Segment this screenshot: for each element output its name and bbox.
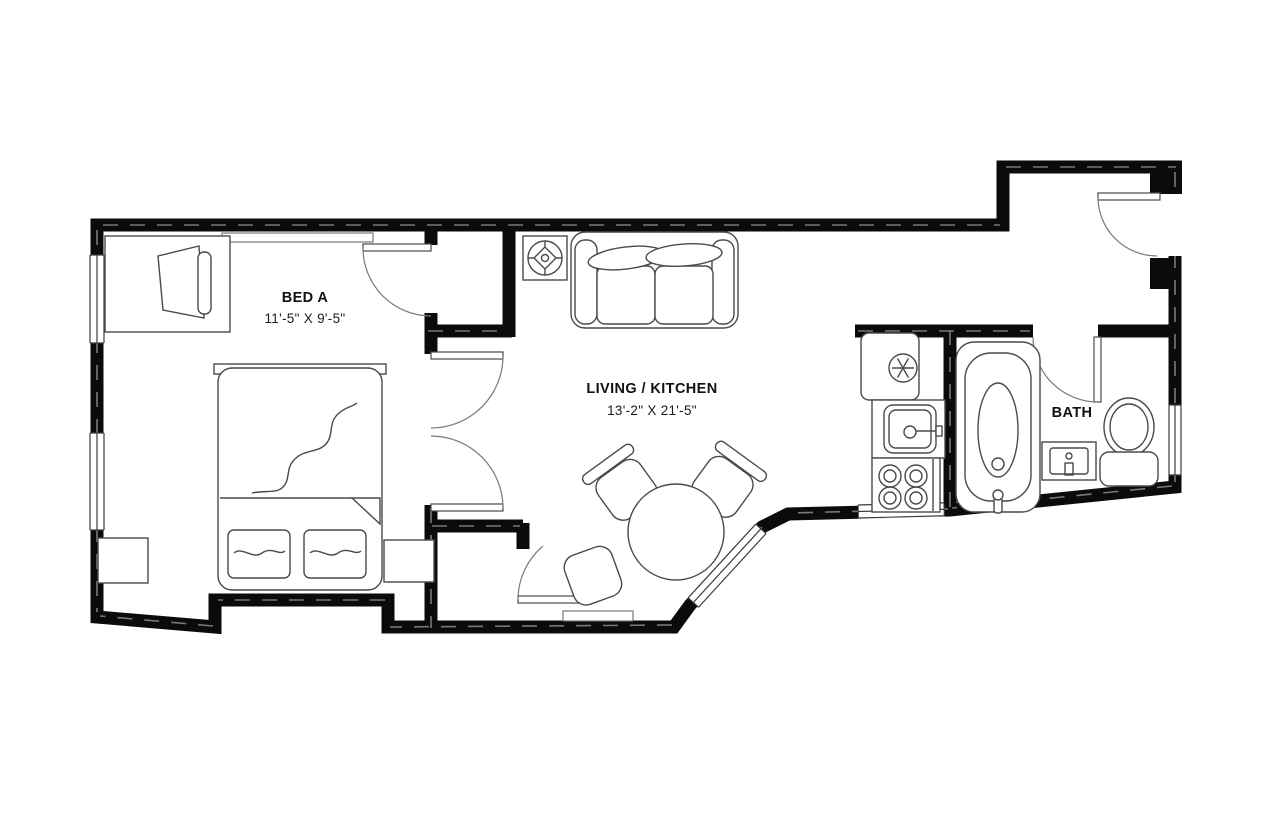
bedroom-closet-door (363, 244, 431, 316)
dining-table (628, 484, 724, 580)
vanity-sink-icon (1042, 442, 1096, 480)
stove-icon (872, 458, 940, 512)
kitchen-sink-icon (872, 400, 945, 458)
interior-walls (425, 219, 1181, 633)
bedroom-double-door-upper (431, 352, 503, 428)
pillow (228, 530, 290, 578)
toilet-icon (1100, 398, 1158, 486)
double-bed (214, 364, 386, 590)
living-kitchen-label: LIVING / KITCHEN (586, 381, 717, 397)
kitchen-appliances (861, 333, 945, 512)
nightstand-right (384, 540, 434, 582)
wall-jog-block (1150, 258, 1181, 289)
bedroom-dimensions: 11'-5" X 9'-5" (265, 311, 346, 326)
ceiling-light-icon (523, 236, 567, 280)
window-bedroom-left-upper (88, 255, 106, 343)
entry-door-opening (1166, 194, 1186, 256)
closet-shelf (222, 233, 373, 242)
refrigerator-icon (861, 333, 919, 400)
floor-plan-page: BED A 11'-5" X 9'-5" LIVING / KITCHEN 13… (0, 0, 1280, 828)
bathtub-icon (956, 342, 1040, 513)
desk-chair (158, 246, 211, 318)
sofa-seat (655, 266, 713, 324)
living-kitchen-dimensions: 13'-2" X 21'-5" (607, 403, 697, 418)
pillow (304, 530, 366, 578)
entry-door (1098, 193, 1160, 256)
wall-corner-block (1150, 161, 1182, 194)
bath-label: BATH (1052, 405, 1093, 421)
bath-door (1033, 337, 1101, 402)
sofa-arm (575, 240, 597, 324)
floor-plan: BED A 11'-5" X 9'-5" LIVING / KITCHEN 13… (0, 0, 1280, 828)
bottom-wall-sill (563, 611, 633, 621)
sofa-seat (597, 266, 655, 324)
dining-set (561, 439, 769, 608)
bedroom-double-door-lower (431, 436, 503, 511)
bedroom-label: BED A (282, 290, 329, 306)
window-bedroom-left-lower (88, 433, 106, 530)
window-bath-right (1166, 405, 1186, 475)
bedroom-furniture (98, 233, 434, 590)
nightstand-left (98, 538, 148, 583)
sofa (571, 232, 738, 328)
